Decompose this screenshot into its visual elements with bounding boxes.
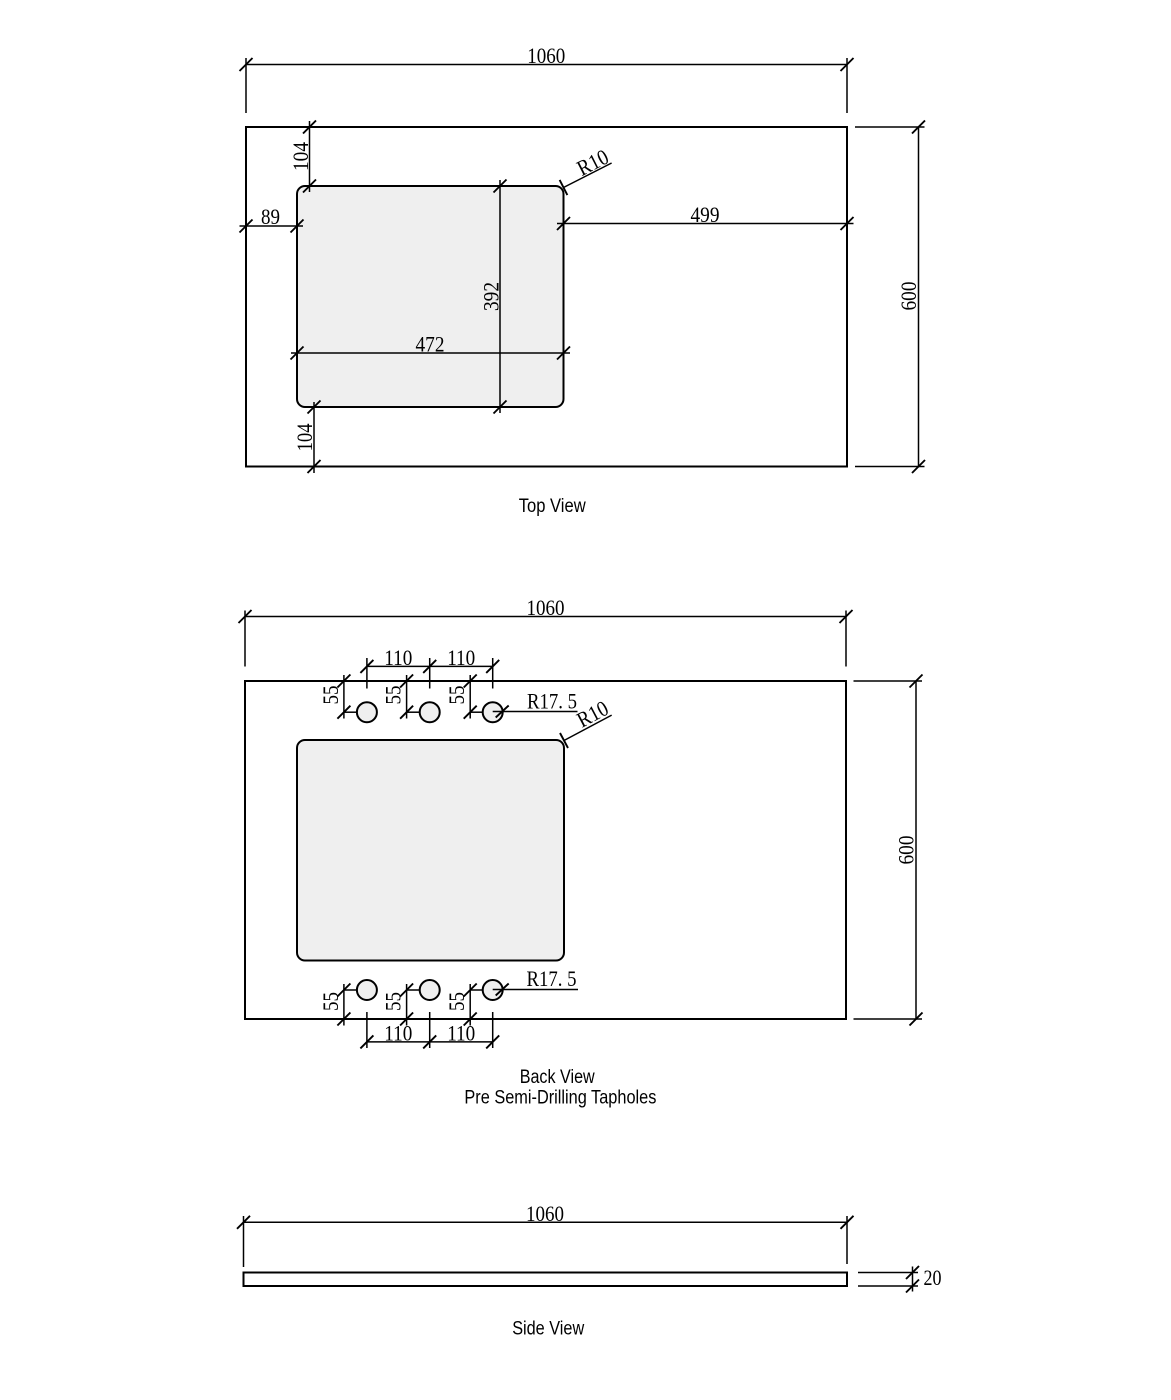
svg-text:55: 55: [318, 992, 343, 1011]
svg-text:110: 110: [384, 1020, 412, 1045]
svg-text:600: 600: [896, 282, 921, 311]
svg-text:104: 104: [292, 423, 317, 451]
svg-text:1060: 1060: [527, 595, 565, 620]
svg-text:392: 392: [479, 282, 504, 311]
svg-text:55: 55: [318, 686, 343, 705]
svg-text:110: 110: [447, 645, 475, 670]
svg-text:55: 55: [381, 992, 406, 1011]
svg-text:R10: R10: [572, 695, 612, 732]
svg-text:499: 499: [691, 202, 720, 227]
svg-text:Side View: Side View: [512, 1318, 584, 1339]
svg-text:R17. 5: R17. 5: [527, 966, 577, 991]
svg-text:104: 104: [288, 142, 313, 171]
svg-text:89: 89: [261, 204, 280, 229]
svg-text:R10: R10: [573, 144, 613, 181]
svg-text:Top View: Top View: [519, 496, 586, 517]
svg-text:55: 55: [444, 992, 469, 1011]
svg-text:55: 55: [381, 686, 406, 705]
svg-text:20: 20: [924, 1265, 942, 1290]
svg-text:1060: 1060: [526, 1201, 564, 1226]
svg-text:R17. 5: R17. 5: [527, 689, 577, 714]
svg-text:110: 110: [384, 645, 412, 670]
svg-text:1060: 1060: [527, 43, 565, 68]
svg-text:Back View: Back View: [520, 1067, 595, 1088]
svg-text:600: 600: [894, 836, 919, 865]
svg-text:472: 472: [416, 332, 445, 357]
svg-text:Pre Semi-Drilling Tapholes: Pre Semi-Drilling Tapholes: [464, 1088, 656, 1109]
svg-text:110: 110: [447, 1020, 475, 1045]
svg-text:55: 55: [444, 686, 469, 705]
